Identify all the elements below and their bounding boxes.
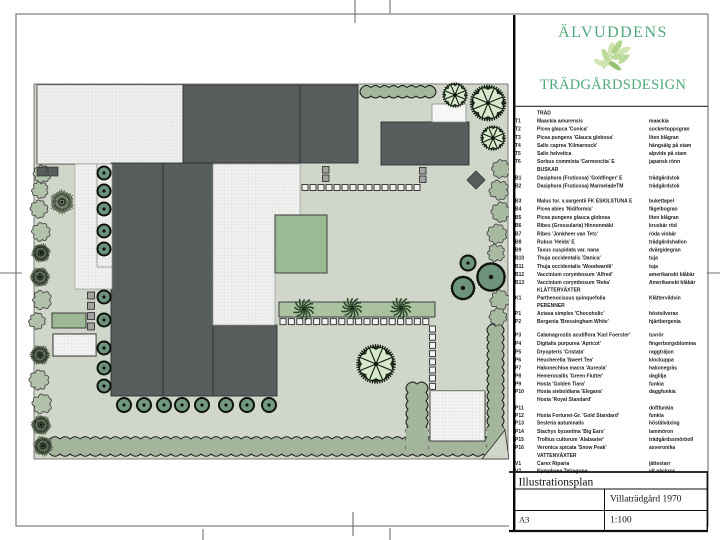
- svg-text:Picea pungens glauca globosa: Picea pungens glauca globosa: [537, 215, 610, 221]
- svg-text:axveronika: axveronika: [649, 445, 675, 451]
- svg-text:P5: P5: [515, 349, 521, 355]
- svg-text:P6: P6: [515, 357, 521, 363]
- svg-text:fingerborgsblomma: fingerborgsblomma: [649, 341, 696, 347]
- svg-text:KLÄTTERVÄXTER: KLÄTTERVÄXTER: [537, 287, 581, 294]
- svg-text:Maackia amurensis: Maackia amurensis: [537, 119, 583, 125]
- svg-text:funkia: funkia: [649, 382, 664, 388]
- svg-text:liten blågran: liten blågran: [649, 214, 679, 221]
- svg-text:T3: T3: [515, 135, 521, 141]
- svg-text:Picea abies 'Nidiformis': Picea abies 'Nidiformis': [537, 207, 593, 213]
- svg-text:Veronica spicata 'Snow Peak': Veronica spicata 'Snow Peak': [537, 445, 607, 451]
- svg-text:klockuppa: klockuppa: [649, 357, 674, 363]
- svg-text:B10: B10: [515, 256, 524, 262]
- svg-text:T1: T1: [515, 119, 521, 125]
- svg-text:hjärtbergenia: hjärtbergenia: [649, 319, 681, 325]
- svg-text:Sorbus commixta 'Carmencita' E: Sorbus commixta 'Carmencita' E: [537, 159, 615, 165]
- svg-text:P2: P2: [515, 319, 521, 325]
- svg-text:Dasiphora (Fruticosa) Marmelad: Dasiphora (Fruticosa) MarmeladeTM: [537, 184, 623, 190]
- svg-text:Dryopteris 'Cristata': Dryopteris 'Cristata': [537, 349, 584, 355]
- svg-text:japansk rönn: japansk rönn: [648, 159, 680, 165]
- svg-text:Stachys byzantina 'Big Ears': Stachys byzantina 'Big Ears': [537, 429, 605, 435]
- svg-text:Carex Riparia: Carex Riparia: [537, 461, 569, 467]
- svg-text:funkia: funkia: [649, 413, 664, 419]
- svg-text:P12: P12: [515, 413, 524, 419]
- svg-text:Vaccinium corymbosum 'Alfred': Vaccinium corymbosum 'Alfred': [537, 272, 613, 278]
- svg-text:Ribes (Grossularia) Hinnonmäki: Ribes (Grossularia) Hinnonmäki: [537, 223, 614, 229]
- svg-text:B6: B6: [515, 223, 522, 229]
- svg-text:Vaccinium corymbosum 'Reka': Vaccinium corymbosum 'Reka': [537, 280, 610, 286]
- svg-text:P11: P11: [515, 405, 524, 411]
- svg-text:ÄLVUDDENS: ÄLVUDDENS: [558, 23, 668, 41]
- svg-text:P15: P15: [515, 437, 524, 443]
- svg-text:trädgårdshallon: trädgårdshallon: [649, 238, 687, 245]
- svg-text:P13: P13: [515, 421, 524, 427]
- svg-text:P3: P3: [515, 333, 521, 339]
- svg-text:trädgårdstok: trädgårdstok: [649, 174, 680, 181]
- svg-text:Sesleria autumnalis: Sesleria autumnalis: [537, 421, 584, 427]
- svg-text:Heucherella 'Sweet Tea': Heucherella 'Sweet Tea': [537, 357, 593, 363]
- svg-text:röda vinbär: röda vinbär: [649, 232, 676, 238]
- svg-text:Klättervildvin: Klättervildvin: [649, 295, 681, 301]
- svg-text:Hakonechloa macra 'Aureola': Hakonechloa macra 'Aureola': [537, 365, 607, 371]
- svg-text:Villaträdgård 1970: Villaträdgård 1970: [610, 494, 682, 505]
- svg-text:trädgårdstok: trädgårdstok: [649, 183, 680, 190]
- svg-text:P8: P8: [515, 374, 521, 380]
- svg-text:daglilja: daglilja: [649, 374, 666, 380]
- svg-text:B5: B5: [515, 215, 522, 221]
- svg-text:P10: P10: [515, 389, 524, 395]
- svg-text:Hemerocallis 'Green Flutter': Hemerocallis 'Green Flutter': [537, 374, 603, 380]
- svg-text:T2: T2: [515, 127, 521, 133]
- svg-text:T6: T6: [515, 159, 521, 165]
- svg-text:T5: T5: [515, 151, 521, 157]
- svg-text:Trollius cultorum 'Alabaster': Trollius cultorum 'Alabaster': [537, 437, 604, 443]
- svg-text:krusbär röd: krusbär röd: [649, 223, 677, 229]
- svg-text:Malus tor. v.sargentii FK ESKI: Malus tor. v.sargentii FK ESKILSTUNA E: [537, 199, 633, 205]
- svg-text:sockertoppsgran: sockertoppsgran: [649, 127, 690, 133]
- svg-text:Calamagrostis acutiflora 'Karl: Calamagrostis acutiflora 'Karl Foerster': [537, 333, 630, 339]
- svg-text:jättestarr: jättestarr: [648, 461, 670, 467]
- svg-text:alpvide på stam: alpvide på stam: [649, 150, 687, 157]
- svg-text:B7: B7: [515, 232, 522, 238]
- svg-text:Taxus cuspidata var. nana: Taxus cuspidata var. nana: [537, 247, 599, 253]
- svg-text:B1: B1: [515, 175, 522, 181]
- svg-text:trädgårdssmörboll: trädgårdssmörboll: [649, 436, 694, 443]
- svg-text:liten blågran: liten blågran: [649, 134, 679, 141]
- svg-text:B3: B3: [515, 199, 522, 205]
- svg-text:VATTENVÄXTER: VATTENVÄXTER: [537, 452, 577, 459]
- svg-text:PERENNER: PERENNER: [537, 303, 565, 309]
- svg-text:Dasiphora (Fruticosa) 'Goldfin: Dasiphora (Fruticosa) 'Goldfinger' E: [537, 175, 623, 181]
- svg-text:Ribes 'Jonkheer van Tets': Ribes 'Jonkheer van Tets': [537, 232, 598, 238]
- svg-text:B13: B13: [515, 280, 524, 286]
- svg-text:amerikanskt blåbär: amerikanskt blåbär: [649, 271, 695, 278]
- svg-text:hängsälg på stam: hängsälg på stam: [649, 142, 692, 149]
- svg-text:Parthenocissus quinquefolia: Parthenocissus quinquefolia: [537, 295, 606, 301]
- svg-text:P4: P4: [515, 341, 521, 347]
- svg-text:Hosta sieboldiana 'Elegans': Hosta sieboldiana 'Elegans': [537, 389, 603, 395]
- svg-text:Picea pungens 'Glauca globosa': Picea pungens 'Glauca globosa': [537, 135, 613, 141]
- svg-text:tuja: tuja: [649, 256, 658, 262]
- svg-text:Amerikanskt blåbär: Amerikanskt blåbär: [649, 279, 695, 286]
- svg-text:Digitalis purpurea 'Apricot': Digitalis purpurea 'Apricot': [537, 341, 601, 347]
- svg-text:Bergenia 'Bressingham White': Bergenia 'Bressingham White': [537, 319, 609, 325]
- svg-text:Illustrationsplan: Illustrationsplan: [519, 477, 594, 489]
- svg-text:Actaea simplex 'Chocoholic': Actaea simplex 'Chocoholic': [537, 311, 604, 317]
- svg-text:BUSKAR: BUSKAR: [537, 167, 559, 173]
- svg-text:P14: P14: [515, 429, 524, 435]
- svg-text:P16: P16: [515, 445, 524, 451]
- svg-text:T4: T4: [515, 143, 521, 149]
- svg-text:dvärgidegran: dvärgidegran: [649, 247, 681, 253]
- svg-text:Hosta Fortunei-Gr. 'Gold Stand: Hosta Fortunei-Gr. 'Gold Standard': [537, 413, 619, 419]
- svg-text:V1: V1: [515, 461, 521, 467]
- svg-text:Salix caprea 'Kilmarnock': Salix caprea 'Kilmarnock': [537, 143, 597, 149]
- svg-text:A3: A3: [519, 515, 529, 525]
- svg-text:daggfunkia: daggfunkia: [649, 389, 676, 395]
- svg-text:K1: K1: [515, 295, 522, 301]
- svg-text:Salix helvetica: Salix helvetica: [537, 151, 572, 157]
- svg-text:lammöron: lammöron: [649, 429, 673, 435]
- svg-text:P1: P1: [515, 311, 521, 317]
- svg-text:B9: B9: [515, 247, 522, 253]
- svg-text:Hosta 'Golden Tiara': Hosta 'Golden Tiara': [537, 382, 585, 388]
- svg-text:1:100: 1:100: [610, 516, 632, 526]
- svg-text:TRÄDGÅRDSDESIGN: TRÄDGÅRDSDESIGN: [540, 76, 687, 93]
- svg-text:B12: B12: [515, 272, 524, 278]
- svg-text:TRÄD: TRÄD: [537, 109, 551, 116]
- svg-text:doftfunkia: doftfunkia: [649, 405, 673, 411]
- svg-text:Rubus 'Heida' E: Rubus 'Heida' E: [537, 239, 575, 245]
- svg-text:P7: P7: [515, 365, 521, 371]
- svg-text:bukettapel: bukettapel: [649, 199, 675, 205]
- svg-text:P9: P9: [515, 382, 521, 388]
- svg-text:maackia: maackia: [649, 119, 669, 125]
- svg-text:Thuja occidentalis 'Woodwardii: Thuja occidentalis 'Woodwardii': [537, 264, 613, 270]
- svg-text:hakonegräs: hakonegräs: [649, 365, 677, 371]
- svg-text:B11: B11: [515, 264, 524, 270]
- svg-text:raggträjon: raggträjon: [649, 349, 674, 355]
- svg-text:Hosta 'Royal Standard': Hosta 'Royal Standard': [537, 397, 591, 403]
- svg-text:tuja: tuja: [649, 264, 658, 270]
- svg-text:tuvrör: tuvrör: [649, 333, 664, 339]
- svg-text:Picea glauca 'Conica': Picea glauca 'Conica': [537, 127, 588, 133]
- svg-text:B8: B8: [515, 239, 522, 245]
- svg-text:Thuja occidentalis 'Danica': Thuja occidentalis 'Danica': [537, 256, 601, 262]
- svg-text:höstsilverax: höstsilverax: [649, 311, 678, 317]
- svg-text:höstälväxing: höstälväxing: [649, 421, 680, 427]
- svg-text:fågelbogran: fågelbogran: [649, 206, 678, 213]
- svg-text:B4: B4: [515, 207, 522, 213]
- svg-text:B2: B2: [515, 184, 522, 190]
